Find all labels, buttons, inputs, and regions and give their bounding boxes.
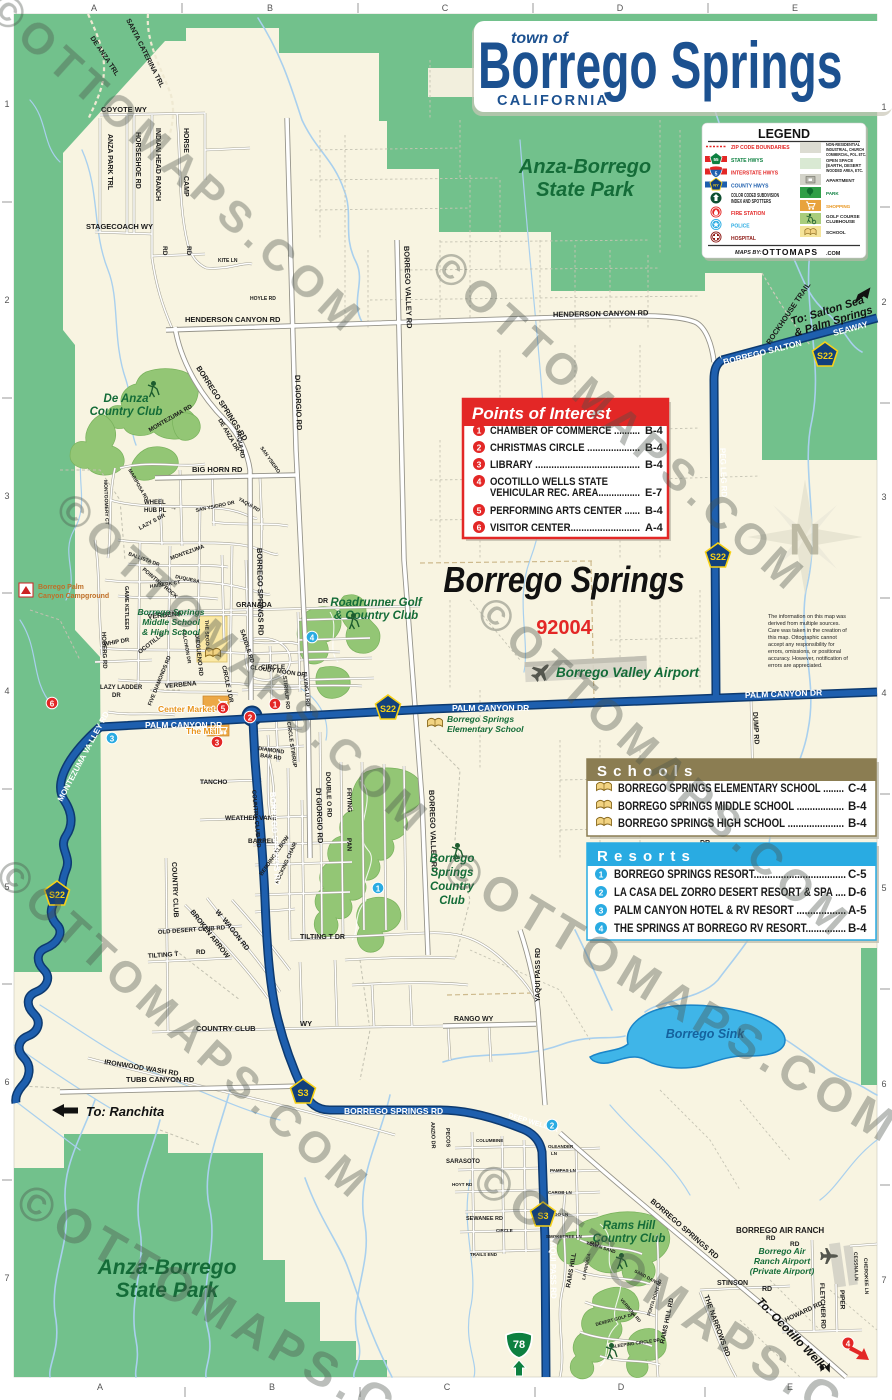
svg-text:De Anza: De Anza: [104, 393, 150, 405]
svg-text:4: 4: [310, 634, 315, 643]
svg-text:DR: DR: [318, 598, 328, 605]
svg-text:CHEROKEE LN: CHEROKEE LN: [862, 1258, 869, 1295]
svg-text:STAGECOACH WY: STAGECOACH WY: [86, 222, 153, 231]
svg-text:S22: S22: [380, 704, 396, 714]
svg-text:5: 5: [881, 883, 886, 893]
svg-text:SHOPPING: SHOPPING: [826, 204, 851, 209]
svg-text:RD: RD: [161, 246, 168, 256]
svg-text:Elementary School: Elementary School: [447, 724, 524, 734]
svg-text:PAMPAS LN: PAMPAS LN: [550, 1168, 576, 1173]
svg-text:HENDERSON CANYON RD: HENDERSON CANYON RD: [553, 308, 649, 319]
svg-text:78: 78: [513, 1339, 525, 1351]
svg-text:STATE HWYS: STATE HWYS: [731, 158, 764, 164]
svg-text:D: D: [618, 1382, 625, 1392]
svg-text:HENDERSON CANYON RD: HENDERSON CANYON RD: [185, 315, 281, 324]
svg-text:2: 2: [599, 888, 604, 898]
svg-text:& Country Club: & Country Club: [334, 610, 418, 622]
svg-text:.COM: .COM: [826, 251, 841, 257]
svg-text:OTTOMAPS: OTTOMAPS: [762, 247, 818, 257]
svg-text:Canyon Campground: Canyon Campground: [38, 593, 109, 600]
svg-text:To: Ranchita: To: Ranchita: [86, 1104, 164, 1119]
svg-text:1: 1: [376, 885, 381, 894]
svg-text:E: E: [792, 3, 798, 13]
svg-text:6: 6: [50, 700, 55, 709]
svg-text:LN: LN: [551, 1151, 557, 1156]
svg-text:Borrego Springs: Borrego Springs: [447, 714, 514, 724]
svg-text:HOYT RD: HOYT RD: [452, 1182, 473, 1187]
svg-text:accuracy. However, notificatio: accuracy. However, notification of: [768, 656, 848, 662]
svg-text:BORREGO AIR RANCH: BORREGO AIR RANCH: [736, 1226, 824, 1235]
svg-text:Borrego Palm: Borrego Palm: [38, 584, 84, 591]
svg-text:R e s o r t s: R e s o r t s: [597, 848, 691, 865]
svg-text:5: 5: [221, 705, 226, 714]
svg-text:4: 4: [846, 1340, 851, 1349]
svg-text:1: 1: [477, 426, 482, 436]
svg-text:2: 2: [4, 295, 9, 305]
svg-text:RD: RD: [766, 1235, 776, 1242]
svg-text:WOODED AREA, ETC.: WOODED AREA, ETC.: [826, 168, 863, 173]
svg-text:B-4: B-4: [848, 801, 867, 813]
svg-text:CESSNA LN: CESSNA LN: [852, 1252, 859, 1281]
svg-text:PAN: PAN: [345, 838, 352, 852]
svg-text:6: 6: [881, 1079, 886, 1089]
svg-text:VISITOR CENTER................: VISITOR CENTER..........................: [490, 522, 640, 534]
svg-text:STINSON: STINSON: [717, 1280, 748, 1287]
svg-text:PIPER: PIPER: [838, 1290, 846, 1310]
svg-text:C-4: C-4: [848, 783, 867, 795]
svg-text:COMMERCIAL, POL. ETC.: COMMERCIAL, POL. ETC.: [826, 152, 866, 157]
svg-text:4: 4: [4, 686, 9, 696]
svg-text:Ranch Airport: Ranch Airport: [754, 1256, 812, 1266]
svg-text:S3: S3: [297, 1088, 308, 1098]
svg-text:derived from multiple sourc: derived from multiple sources.: [768, 621, 840, 627]
svg-text:(Private Airport): (Private Airport): [750, 1266, 815, 1276]
svg-text:HOSPITAL: HOSPITAL: [731, 236, 756, 242]
svg-text:FIRE STATION: FIRE STATION: [731, 211, 765, 217]
svg-text:BIG HORN RD: BIG HORN RD: [192, 465, 243, 474]
svg-text:D: D: [617, 3, 624, 13]
svg-text:C-5: C-5: [848, 869, 867, 881]
svg-text:accept any responsibility f: accept any responsibility for: [768, 642, 835, 648]
svg-text:B-4: B-4: [848, 818, 867, 830]
svg-text:NY: NY: [713, 183, 719, 188]
svg-text:2: 2: [881, 297, 886, 307]
svg-text:The Mall: The Mall: [186, 726, 220, 736]
svg-text:LIBRARY ......................: LIBRARY ................................…: [490, 459, 640, 471]
svg-text:B: B: [267, 3, 273, 13]
svg-text:RD: RD: [185, 246, 192, 256]
svg-text:ANZIO DR: ANZIO DR: [429, 1122, 436, 1149]
svg-text:CIRCLE: CIRCLE: [496, 1228, 513, 1233]
svg-text:RANGO WY: RANGO WY: [454, 1016, 494, 1023]
svg-text:TRAILS END: TRAILS END: [470, 1252, 498, 1257]
svg-text:CALIFORNIA: CALIFORNIA: [497, 93, 611, 109]
svg-text:PALM CANYON DR: PALM CANYON DR: [452, 703, 529, 713]
svg-text:INTERSTATE HWYS: INTERSTATE HWYS: [731, 171, 779, 177]
svg-text:OLEANDER: OLEANDER: [548, 1144, 574, 1149]
svg-text:POLICE: POLICE: [731, 224, 750, 230]
svg-text:S22: S22: [710, 552, 726, 562]
svg-text:Borrego Springs: Borrego Springs: [478, 29, 842, 103]
svg-text:errors are appreciated.: errors are appreciated.: [768, 663, 823, 669]
svg-text:1: 1: [599, 870, 604, 880]
svg-text:A: A: [91, 3, 97, 13]
svg-text:INDEX AND SPOTTERS: INDEX AND SPOTTERS: [731, 199, 771, 205]
svg-text:→: →: [170, 505, 177, 512]
svg-text:State Park: State Park: [536, 179, 635, 201]
svg-text:3: 3: [881, 492, 886, 502]
svg-text:ZIP CODE BOUNDARIES: ZIP CODE BOUNDARIES: [731, 145, 790, 151]
svg-text:RD: RD: [196, 949, 206, 956]
svg-text:Center Market: Center Market: [158, 704, 215, 714]
svg-text:The information on this map wa: The information on this map was: [768, 614, 846, 620]
svg-text:1: 1: [881, 102, 886, 112]
svg-text:Anza-Borrego: Anza-Borrego: [518, 156, 651, 178]
svg-text:Care was taken in the creation: Care was taken in the creation of: [768, 628, 847, 634]
svg-text:PARK: PARK: [826, 191, 839, 196]
svg-text:WY: WY: [300, 1019, 312, 1028]
svg-text:A: A: [97, 1382, 103, 1392]
svg-text:TANCHO: TANCHO: [200, 779, 227, 786]
svg-text:TILTING T DR: TILTING T DR: [300, 934, 345, 941]
svg-text:DR: DR: [112, 693, 121, 699]
svg-text:LAZY LADDER: LAZY LADDER: [100, 685, 143, 691]
svg-text:this map. Ottographic canno: this map. Ottographic cannot: [768, 635, 837, 641]
svg-text:A-4: A-4: [645, 522, 664, 534]
svg-text:3: 3: [477, 460, 482, 470]
svg-text:3: 3: [215, 739, 220, 748]
svg-text:BORREGO SPRINGS RD: BORREGO SPRINGS RD: [344, 1106, 443, 1116]
svg-text:2: 2: [248, 714, 253, 723]
svg-text:5: 5: [715, 172, 718, 178]
svg-text:2: 2: [477, 443, 482, 453]
svg-text:COUNTY HWYS: COUNTY HWYS: [731, 184, 769, 190]
svg-text:PERFORMING ARTS CENTER ......: PERFORMING ARTS CENTER ......: [490, 505, 640, 517]
svg-text:6: 6: [477, 523, 482, 533]
svg-text:C: C: [442, 3, 449, 13]
svg-text:Country Club: Country Club: [90, 406, 163, 418]
svg-text:D-6: D-6: [848, 887, 867, 899]
svg-text:PECOS: PECOS: [444, 1128, 451, 1148]
svg-text:Roadrunner Golf: Roadrunner Golf: [330, 597, 423, 609]
svg-text:KITE LN: KITE LN: [218, 258, 238, 264]
svg-text:COLUMBINE: COLUMBINE: [476, 1138, 503, 1143]
svg-text:HOYLE RD: HOYLE RD: [250, 296, 276, 302]
svg-text:7: 7: [4, 1273, 9, 1283]
svg-text:MAPS BY:: MAPS BY:: [735, 250, 762, 256]
svg-text:4: 4: [881, 688, 886, 698]
svg-text:APARTMENT: APARTMENT: [826, 178, 855, 183]
svg-text:2: 2: [550, 1122, 555, 1131]
svg-text:ANZA PARK TRL: ANZA PARK TRL: [106, 134, 113, 191]
svg-text:GRANADA: GRANADA: [236, 602, 272, 609]
svg-text:7: 7: [881, 1275, 886, 1285]
svg-text:1: 1: [4, 99, 9, 109]
svg-text:6: 6: [4, 1077, 9, 1087]
svg-text:SARASOTO: SARASOTO: [446, 1159, 480, 1165]
svg-text:YAQUI PASS RD: YAQUI PASS RD: [535, 948, 542, 1002]
svg-text:TUBB CANYON RD: TUBB CANYON RD: [126, 1075, 195, 1084]
svg-text:errors, omissions, or posit: errors, omissions, or positional: [768, 649, 841, 655]
svg-text:C: C: [444, 1382, 451, 1392]
svg-text:Borrego Air: Borrego Air: [759, 1246, 807, 1256]
svg-text:S22: S22: [817, 351, 833, 361]
svg-text:CLUBHOUSE: CLUBHOUSE: [826, 219, 855, 224]
svg-text:WHEEL: WHEEL: [144, 500, 166, 506]
svg-text:55: 55: [713, 157, 719, 162]
svg-text:RD: RD: [762, 1286, 772, 1293]
svg-text:4: 4: [477, 477, 482, 487]
svg-text:3: 3: [4, 491, 9, 501]
svg-text:VEHICULAR REC. AREA...........: VEHICULAR REC. AREA................: [490, 487, 640, 499]
svg-text:B: B: [269, 1382, 275, 1392]
svg-text:B-4: B-4: [645, 505, 664, 517]
svg-text:3: 3: [110, 735, 115, 744]
svg-text:Borrego Springs: Borrego Springs: [443, 561, 684, 601]
svg-text:BORREGO SPRINGS RD: BORREGO SPRINGS RD: [255, 548, 266, 636]
svg-text:SCHOOL: SCHOOL: [826, 230, 846, 235]
svg-text:3: 3: [599, 906, 604, 916]
svg-text:LEGEND: LEGEND: [758, 127, 810, 141]
svg-text:5: 5: [477, 506, 482, 516]
